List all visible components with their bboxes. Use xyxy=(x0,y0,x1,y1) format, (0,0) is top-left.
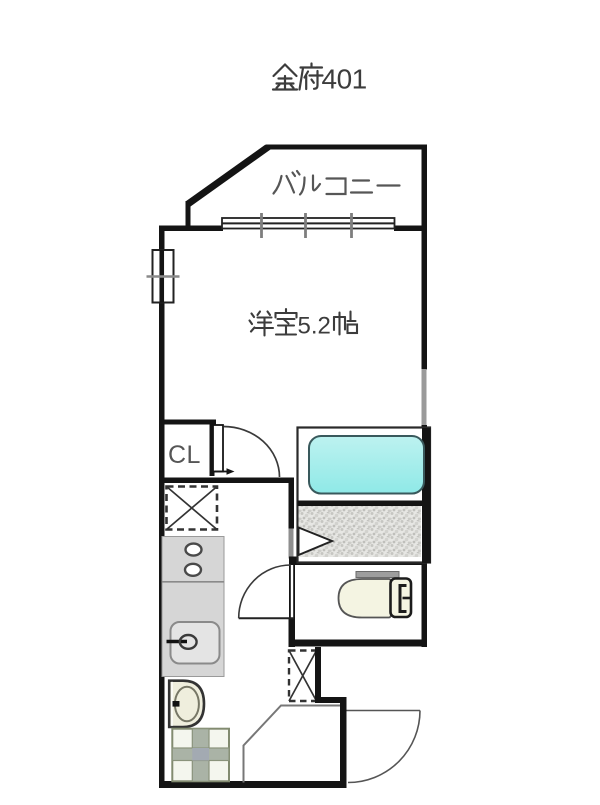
svg-text:401: 401 xyxy=(322,64,367,95)
svg-text:CL: CL xyxy=(168,441,201,469)
svg-text:5.2: 5.2 xyxy=(298,313,331,340)
